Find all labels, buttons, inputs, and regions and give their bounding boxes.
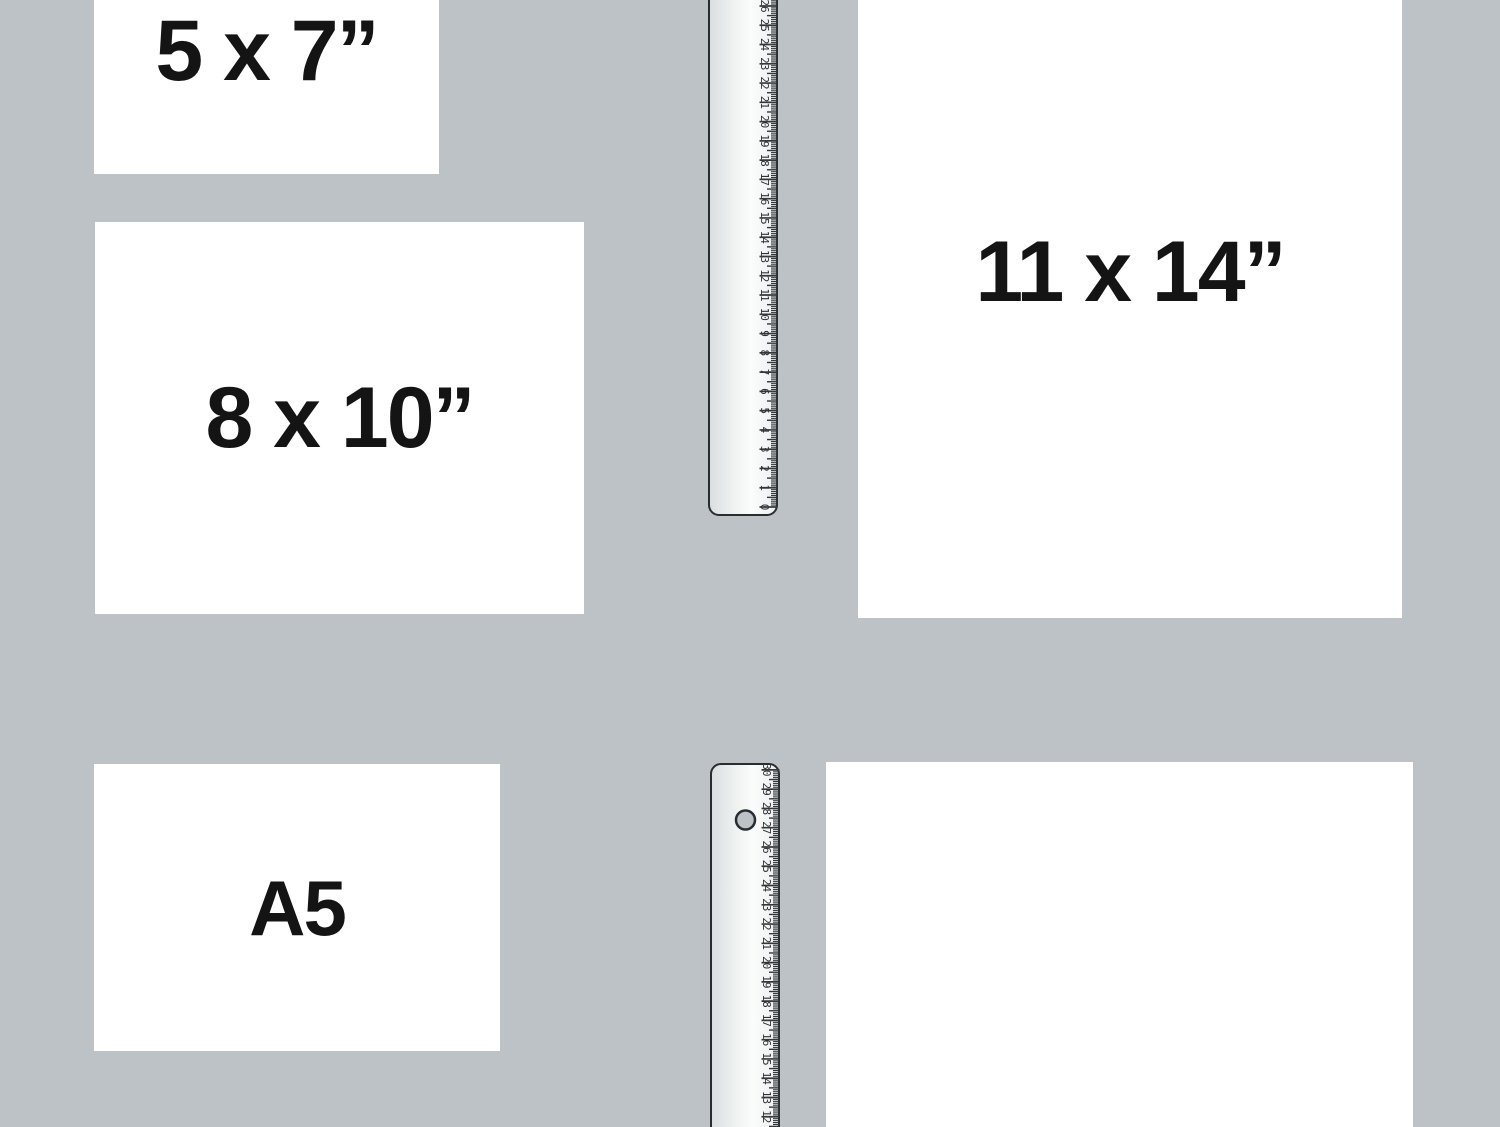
- svg-text:20: 20: [760, 956, 773, 969]
- svg-text:14: 14: [758, 231, 771, 245]
- size-card-bottom-right: [826, 762, 1413, 1127]
- svg-text:22: 22: [758, 76, 771, 89]
- svg-text:19: 19: [760, 975, 773, 988]
- svg-text:7: 7: [758, 369, 771, 376]
- size-card-11x14: 11 x 14”: [858, 0, 1402, 618]
- svg-text:13: 13: [758, 250, 771, 263]
- svg-text:10: 10: [758, 308, 771, 321]
- svg-text:24: 24: [760, 879, 773, 893]
- svg-text:21: 21: [758, 96, 771, 109]
- svg-text:26: 26: [760, 840, 773, 853]
- svg-text:24: 24: [758, 38, 771, 52]
- svg-text:11: 11: [758, 288, 771, 301]
- ruler-scale-icon: 0123456789101112131415161718192021222324…: [710, 763, 780, 1127]
- svg-text:28: 28: [760, 802, 773, 815]
- svg-text:25: 25: [758, 19, 771, 32]
- size-label-11x14: 11 x 14”: [975, 229, 1284, 315]
- size-label-8x10: 8 x 10”: [205, 375, 473, 461]
- ruler-top: 0123456789101112131415161718192021222324…: [708, 0, 778, 516]
- svg-text:30: 30: [760, 763, 773, 776]
- svg-text:6: 6: [758, 388, 771, 395]
- ruler-scale-icon: 0123456789101112131415161718192021222324…: [708, 0, 778, 516]
- svg-text:17: 17: [758, 173, 771, 186]
- svg-text:23: 23: [760, 898, 773, 911]
- print-size-comparison-mockup: 5 x 7” 8 x 10” 11 x 14” A5 0123456789101…: [0, 0, 1500, 1127]
- size-label-5x7: 5 x 7”: [155, 8, 377, 94]
- svg-text:19: 19: [758, 134, 771, 147]
- svg-text:17: 17: [760, 1014, 773, 1027]
- svg-text:29: 29: [760, 783, 773, 796]
- svg-text:18: 18: [758, 154, 771, 167]
- svg-text:12: 12: [758, 269, 771, 282]
- svg-text:15: 15: [760, 1052, 773, 1065]
- svg-text:18: 18: [760, 995, 773, 1008]
- size-label-a5: A5: [249, 869, 345, 947]
- svg-text:21: 21: [760, 937, 773, 950]
- svg-text:9: 9: [758, 330, 771, 337]
- svg-text:1: 1: [758, 484, 771, 491]
- svg-text:16: 16: [760, 1033, 773, 1046]
- svg-text:22: 22: [760, 917, 773, 930]
- svg-text:0: 0: [758, 504, 771, 511]
- svg-text:25: 25: [760, 860, 773, 873]
- svg-text:14: 14: [760, 1072, 773, 1086]
- svg-text:2: 2: [758, 465, 771, 472]
- svg-text:12: 12: [760, 1110, 773, 1123]
- svg-text:20: 20: [758, 115, 771, 128]
- size-card-a5: A5: [94, 764, 500, 1051]
- svg-text:23: 23: [758, 57, 771, 70]
- svg-text:5: 5: [758, 407, 771, 414]
- svg-text:8: 8: [758, 350, 771, 357]
- svg-text:13: 13: [760, 1091, 773, 1104]
- svg-text:26: 26: [758, 0, 771, 13]
- ruler-bottom: 0123456789101112131415161718192021222324…: [710, 763, 780, 1127]
- svg-text:15: 15: [758, 211, 771, 224]
- size-card-5x7: 5 x 7”: [94, 0, 439, 174]
- svg-text:27: 27: [760, 821, 773, 834]
- svg-text:16: 16: [758, 192, 771, 205]
- svg-text:3: 3: [758, 446, 771, 453]
- svg-text:4: 4: [758, 427, 771, 434]
- size-card-8x10: 8 x 10”: [95, 222, 584, 614]
